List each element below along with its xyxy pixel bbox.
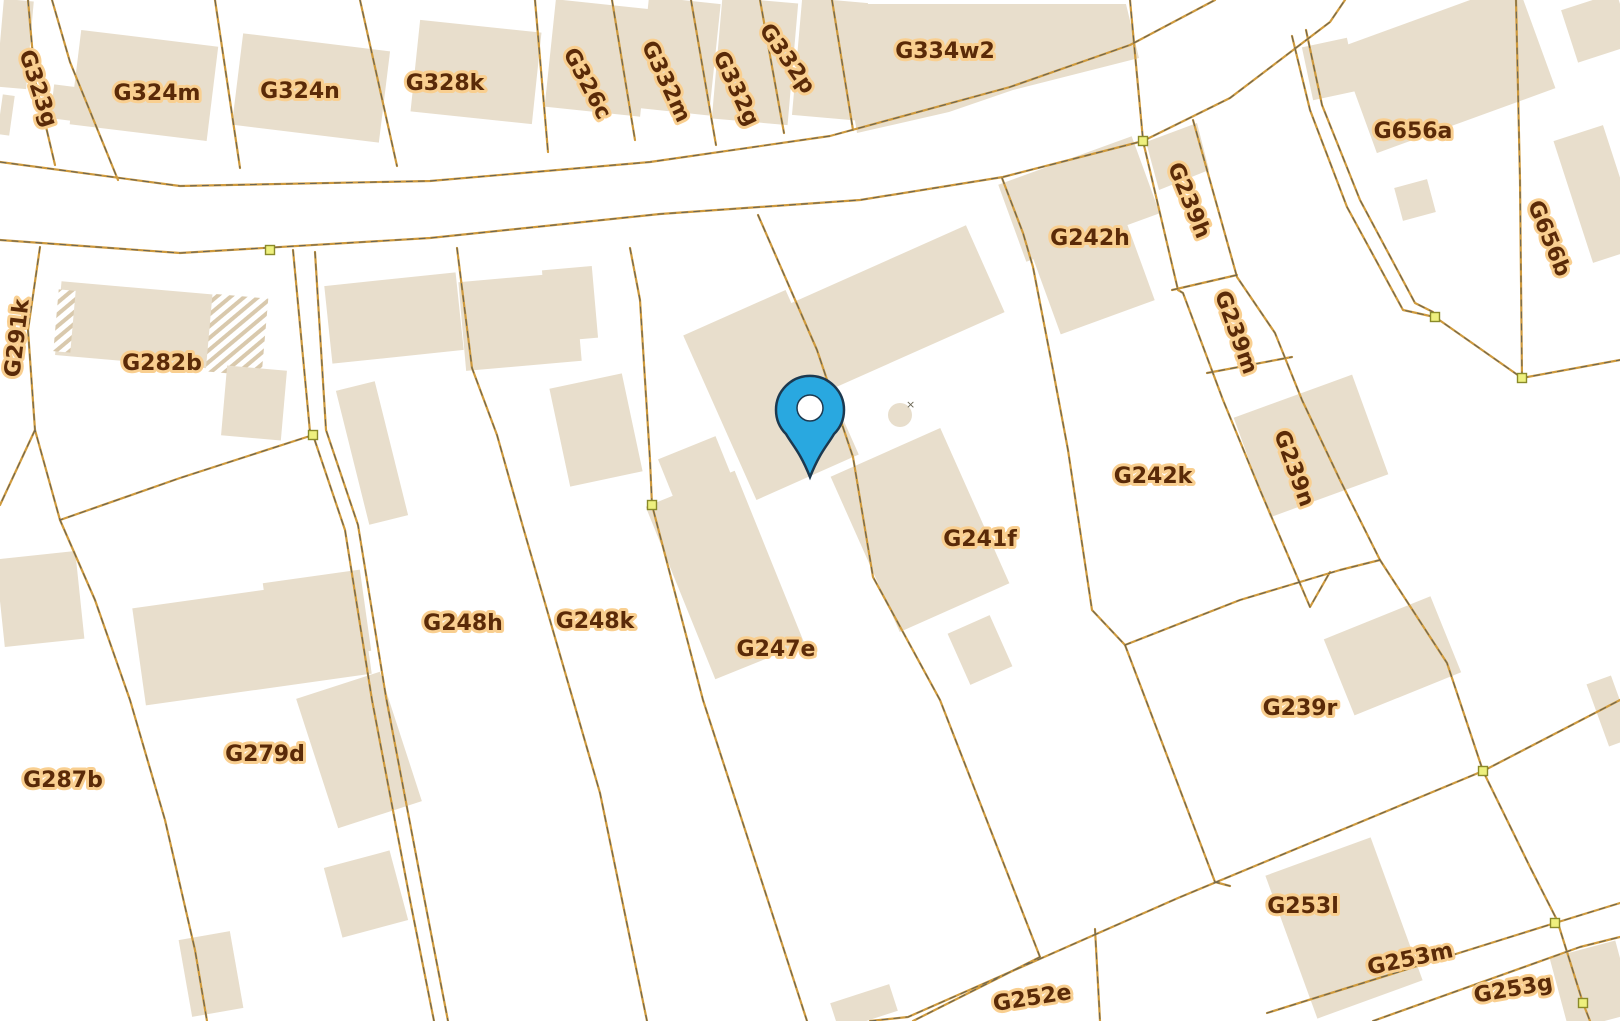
vertex-node: [1479, 767, 1488, 776]
parcel-label-G324m: G324m: [114, 81, 201, 106]
parcel-label-G279d: G279d: [225, 742, 305, 767]
parcel-label-G248k: G248k: [556, 609, 636, 634]
parcel-label-G253g: G253g: [1472, 970, 1555, 1008]
parcel-label-G253l: G253l: [1267, 894, 1339, 919]
parcel-label-G334w2: G334w2: [895, 39, 995, 64]
parcel-label-G248h: G248h: [423, 611, 503, 636]
parcel-label-G242k: G242k: [1114, 464, 1194, 489]
round-structure: ×: [888, 398, 915, 427]
vertex-node: [1139, 137, 1148, 146]
parcel-label-G656b: G656b: [1522, 197, 1575, 280]
vertex-node: [1431, 313, 1440, 322]
parcel-label-G241f: G241f: [943, 527, 1017, 552]
cadastral-map: ×: [0, 0, 1620, 1021]
parcel-label-G242h: G242h: [1050, 226, 1130, 251]
svg-text:×: ×: [906, 398, 915, 411]
parcel-label-G656a: G656a: [1374, 119, 1453, 144]
hatched-building-part: [206, 294, 269, 377]
map-pin-hole: [797, 395, 823, 421]
parcel-label-G324n: G324n: [260, 79, 340, 104]
vertex-node: [266, 246, 275, 255]
vertex-node: [1579, 999, 1588, 1008]
vertex-node: [1518, 374, 1527, 383]
parcel-label-G239r: G239r: [1263, 696, 1338, 721]
vertex-node: [648, 501, 657, 510]
map-canvas: ×: [0, 0, 1620, 1021]
parcel-label-G247e: G247e: [737, 637, 816, 662]
parcel-label-G287b: G287b: [23, 768, 103, 793]
parcel-label-G328k: G328k: [406, 71, 486, 96]
parcel-label-G252e: G252e: [991, 980, 1073, 1017]
parcel-label-G282b: G282b: [122, 351, 202, 376]
vertex-node: [309, 431, 318, 440]
vertex-node: [1551, 919, 1560, 928]
buildings-layer: ×: [0, 0, 1620, 1021]
